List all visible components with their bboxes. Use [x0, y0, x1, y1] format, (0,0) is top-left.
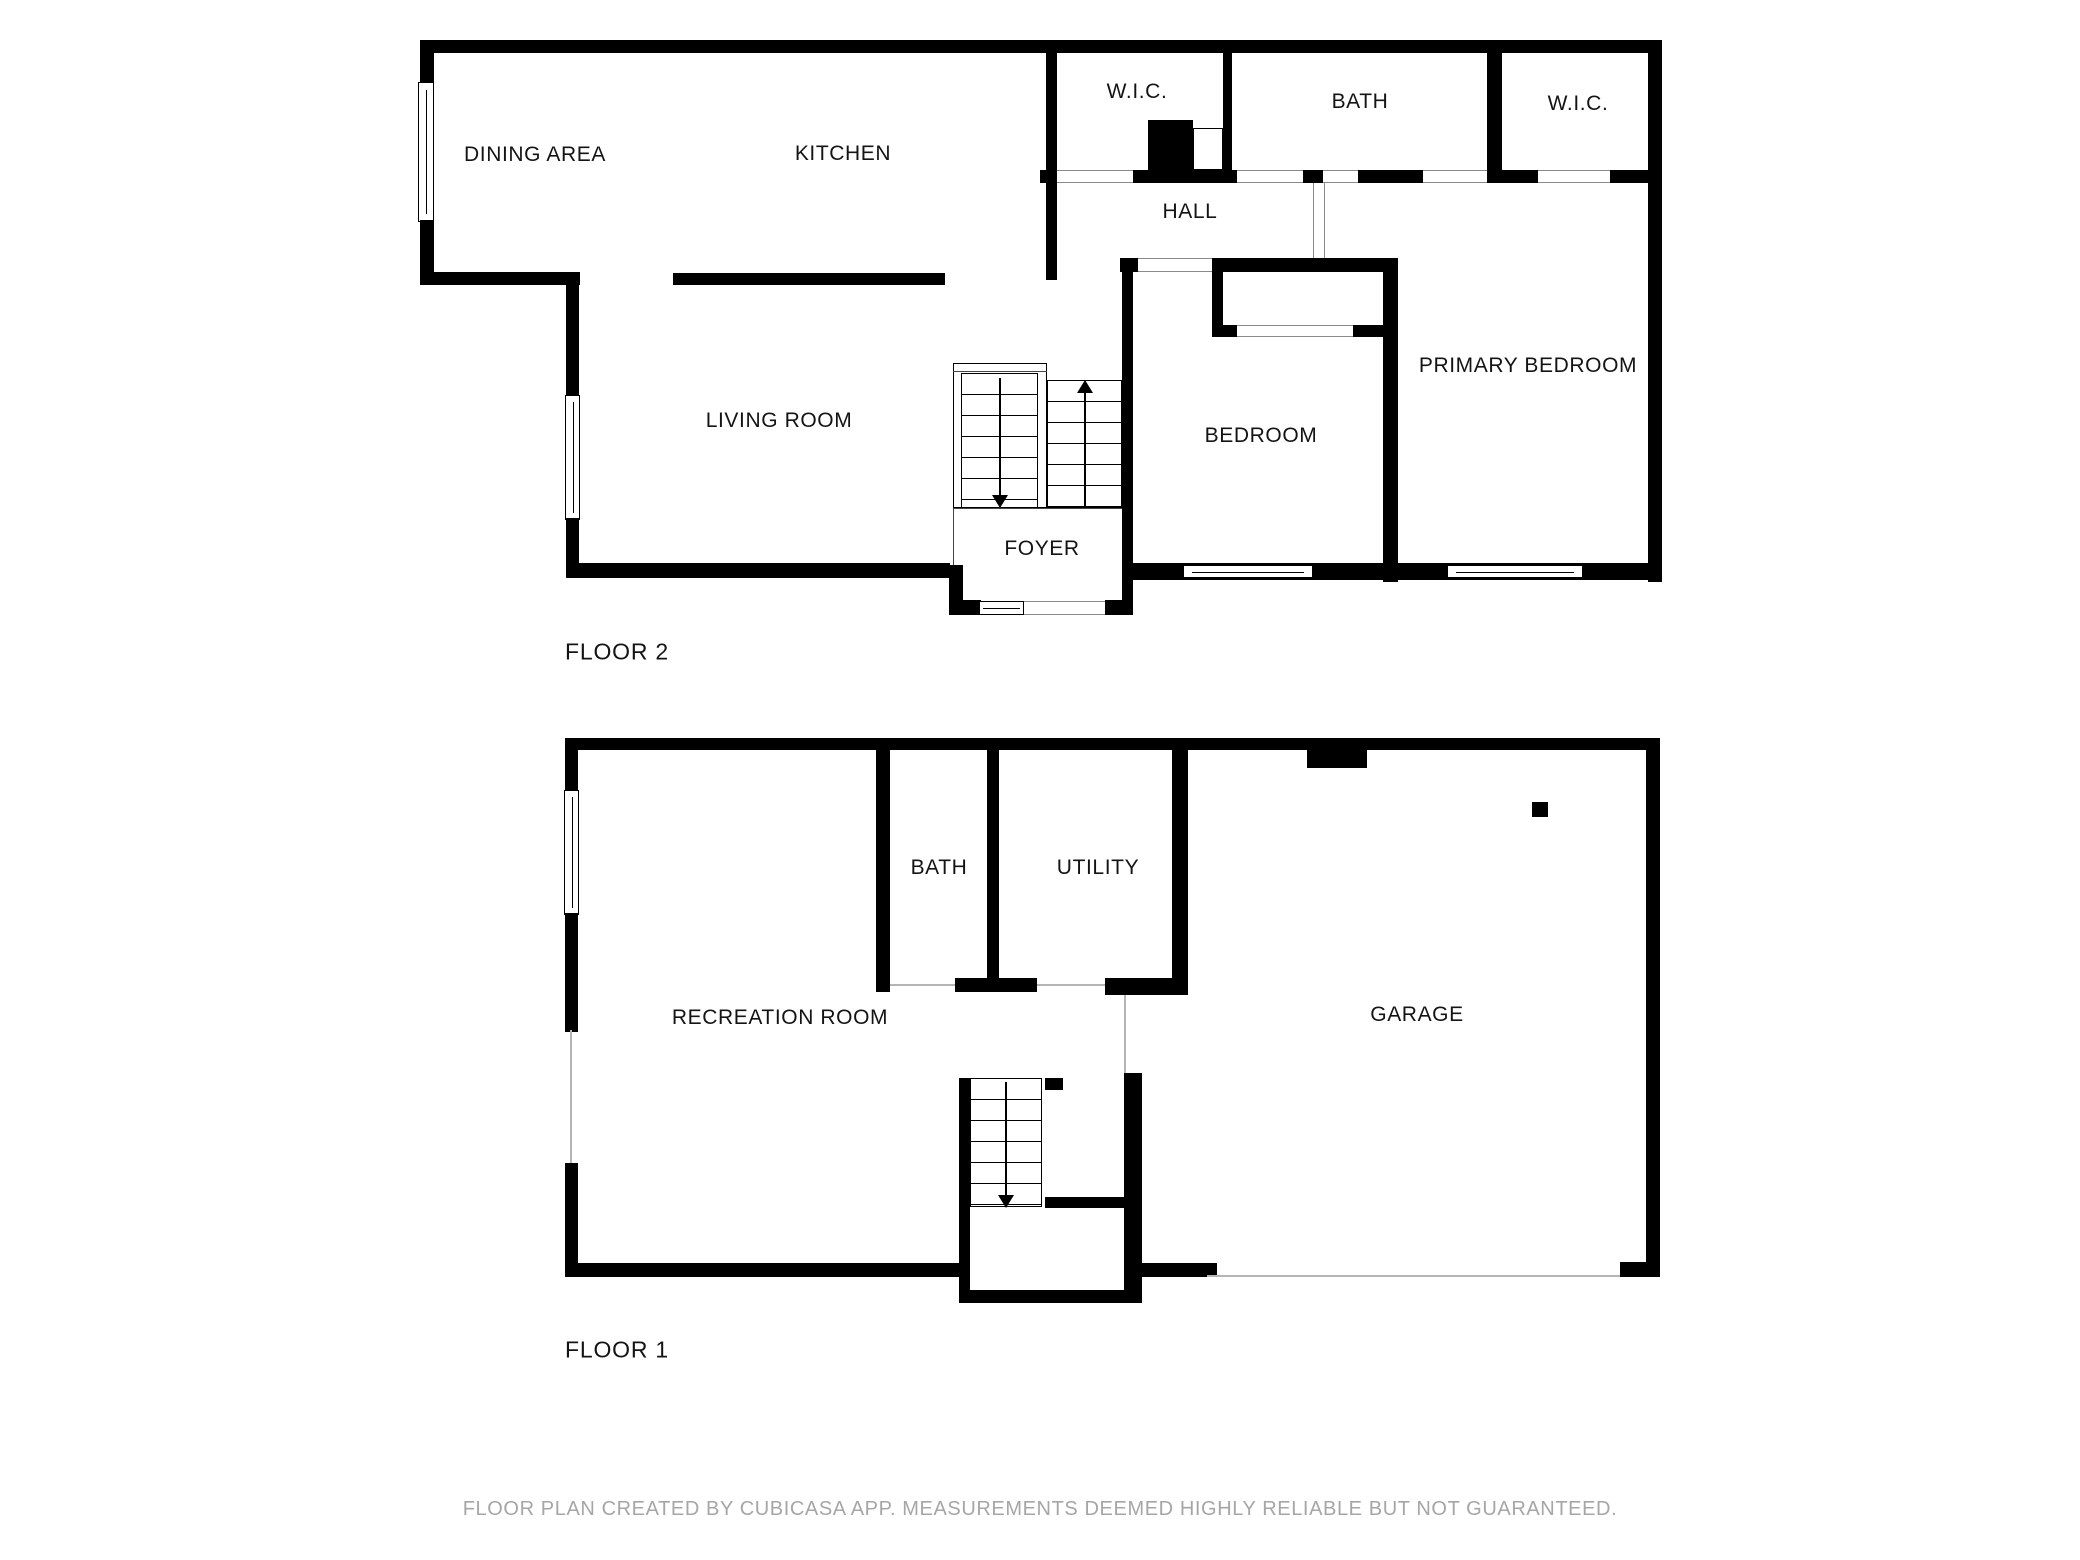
door-threshold-line [890, 984, 955, 986]
wall [1040, 170, 1057, 183]
stair-landing-line [953, 508, 1122, 509]
stairwell-outline [953, 371, 1047, 372]
wall [1172, 750, 1188, 995]
wall [1646, 738, 1660, 1277]
wall [959, 1290, 1142, 1303]
room-label-bath: BATH [1332, 90, 1389, 114]
room-label-kitchen: KITCHEN [795, 142, 891, 166]
door-opening [1538, 170, 1610, 183]
closet-door [1193, 128, 1223, 170]
stairs-up-arrow [1084, 391, 1086, 508]
stairs-down-arrow [998, 1195, 1014, 1208]
door-opening [1323, 170, 1358, 183]
door-opening [1237, 170, 1303, 183]
wall [1383, 258, 1398, 582]
wall [1610, 170, 1662, 183]
room-label-bedroom: BEDROOM [1205, 424, 1318, 448]
room-label-primary-bedroom: PRIMARY BEDROOM [1419, 354, 1637, 378]
room-label-recreation-room: RECREATION ROOM [672, 1006, 888, 1030]
entry-door-opening [1024, 601, 1105, 615]
room-label-living-room: LIVING ROOM [706, 409, 853, 433]
garage-door-line [1207, 1275, 1620, 1277]
wall [1223, 325, 1237, 337]
wall [420, 40, 434, 85]
wall [1620, 1262, 1660, 1277]
wall [420, 40, 1662, 53]
window [1447, 565, 1583, 578]
wall [961, 600, 981, 615]
floor2-title: FLOOR 2 [565, 639, 669, 666]
room-label-foyer: FOYER [1004, 537, 1079, 561]
room-label-garage: GARAGE [1370, 1003, 1463, 1027]
wall [566, 285, 579, 397]
wall [1142, 1263, 1217, 1277]
garage-wall-block [1307, 748, 1367, 768]
floor-plan-page: DINING AREA KITCHEN W.I.C. BATH W.I.C. H… [0, 0, 2080, 1560]
room-label-hall: HALL [1163, 200, 1218, 224]
footer-disclaimer: FLOOR PLAN CREATED BY CUBICASA APP. MEAS… [0, 1498, 2080, 1521]
window [564, 790, 579, 915]
window [418, 82, 434, 222]
wall [1223, 52, 1232, 170]
room-label-wic-right: W.I.C. [1548, 92, 1609, 116]
wall [1358, 170, 1423, 183]
stairs-down-arrow [999, 378, 1001, 496]
wall [565, 738, 1660, 750]
wall [565, 1263, 959, 1277]
door-opening [1313, 183, 1325, 258]
wall [673, 273, 945, 285]
wall [1303, 170, 1323, 183]
wall [565, 738, 578, 793]
wall [1487, 170, 1538, 183]
room-label-wic-left: W.I.C. [1107, 80, 1168, 104]
room-label-bath: BATH [911, 856, 968, 880]
wall [420, 272, 580, 285]
door-threshold-line [1037, 984, 1105, 986]
wall [1124, 1073, 1142, 1303]
door-opening [1057, 170, 1133, 183]
wall [955, 978, 1037, 992]
room-label-dining-area: DINING AREA [464, 143, 606, 167]
stairs-up-arrow [1077, 380, 1093, 393]
wall [1122, 258, 1133, 615]
wall [1046, 52, 1057, 280]
wall [1045, 1197, 1131, 1208]
door-opening [1138, 258, 1212, 272]
wall [1648, 40, 1662, 582]
wall [1105, 600, 1133, 615]
wall [876, 750, 890, 992]
wall [565, 1163, 578, 1277]
wall [1105, 978, 1188, 995]
wall [987, 750, 999, 992]
wall [565, 913, 578, 1032]
window [979, 601, 1024, 615]
floor1-title: FLOOR 1 [565, 1337, 669, 1364]
garage-edge-line [1124, 995, 1126, 1073]
stairs-down-arrow [1005, 1082, 1007, 1196]
door-opening [1423, 170, 1487, 183]
wall [1212, 272, 1223, 337]
room-label-utility: UTILITY [1057, 856, 1139, 880]
garage-post [1532, 802, 1548, 817]
wall-opening-line [570, 1030, 572, 1163]
door-opening [1237, 325, 1353, 337]
window [1183, 565, 1313, 578]
wall [959, 1078, 970, 1303]
wall [1045, 1078, 1063, 1090]
window [565, 395, 580, 520]
chimney-block [1148, 120, 1193, 183]
wall [1487, 52, 1502, 170]
stairs-down-arrow [992, 495, 1008, 508]
wall [566, 563, 950, 578]
wall [1212, 258, 1398, 272]
